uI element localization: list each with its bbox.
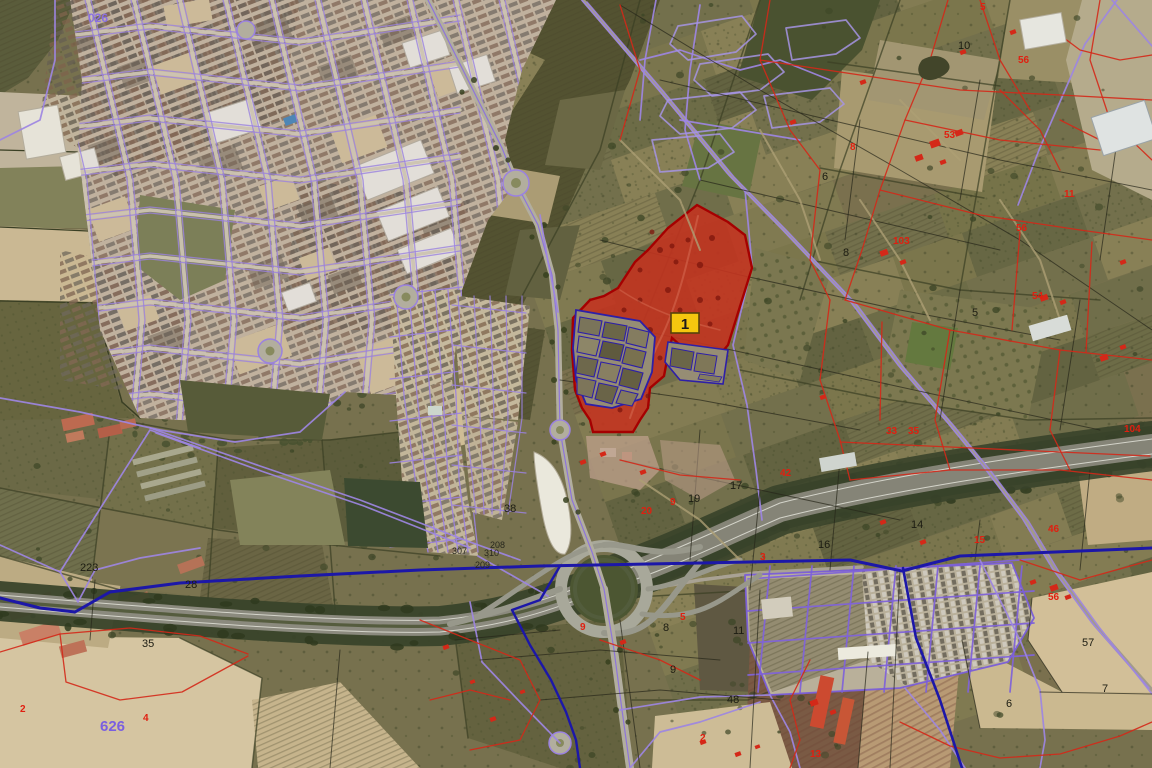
svg-text:10: 10: [958, 40, 970, 52]
svg-text:14: 14: [911, 519, 923, 531]
svg-text:8: 8: [663, 622, 669, 634]
svg-text:53: 53: [944, 130, 956, 141]
svg-text:48: 48: [727, 694, 739, 706]
svg-text:223: 223: [80, 562, 98, 574]
svg-text:38: 38: [504, 503, 516, 515]
svg-text:16: 16: [818, 539, 830, 551]
svg-text:35: 35: [908, 426, 920, 437]
svg-text:11: 11: [1064, 189, 1075, 200]
svg-text:8: 8: [850, 142, 856, 153]
svg-text:9: 9: [580, 622, 586, 633]
svg-text:15: 15: [974, 535, 986, 546]
svg-text:56: 56: [1016, 223, 1028, 234]
svg-text:2: 2: [700, 733, 706, 744]
svg-text:33: 33: [886, 426, 898, 437]
svg-text:1: 1: [681, 316, 689, 333]
svg-text:4: 4: [143, 713, 149, 724]
svg-text:54: 54: [1032, 291, 1044, 302]
svg-text:42: 42: [780, 468, 792, 479]
svg-text:2: 2: [20, 704, 26, 715]
svg-text:56: 56: [1018, 55, 1030, 66]
svg-text:026: 026: [88, 11, 108, 25]
svg-text:9: 9: [670, 497, 676, 508]
svg-text:57: 57: [1082, 637, 1094, 649]
svg-text:5: 5: [680, 612, 686, 623]
svg-text:56: 56: [1048, 592, 1060, 603]
svg-text:3: 3: [760, 552, 766, 563]
svg-text:208: 208: [490, 540, 505, 550]
svg-text:104: 104: [1124, 424, 1141, 435]
svg-text:103: 103: [893, 236, 910, 247]
svg-text:46: 46: [1048, 524, 1060, 535]
svg-text:307: 307: [452, 546, 467, 556]
svg-text:209: 209: [475, 560, 490, 570]
svg-text:35: 35: [142, 638, 154, 650]
svg-text:5: 5: [972, 307, 978, 319]
svg-text:20: 20: [641, 506, 653, 517]
svg-text:19: 19: [688, 493, 700, 505]
svg-text:6: 6: [1006, 698, 1012, 710]
svg-text:7: 7: [1102, 683, 1108, 695]
svg-text:626: 626: [100, 718, 125, 735]
svg-text:11: 11: [733, 625, 744, 637]
svg-text:13: 13: [810, 749, 822, 760]
svg-text:5: 5: [980, 2, 986, 13]
svg-text:9: 9: [670, 664, 676, 676]
svg-text:17: 17: [730, 480, 742, 492]
svg-text:8: 8: [843, 247, 849, 259]
svg-text:28: 28: [185, 579, 197, 591]
svg-text:6: 6: [822, 171, 828, 183]
